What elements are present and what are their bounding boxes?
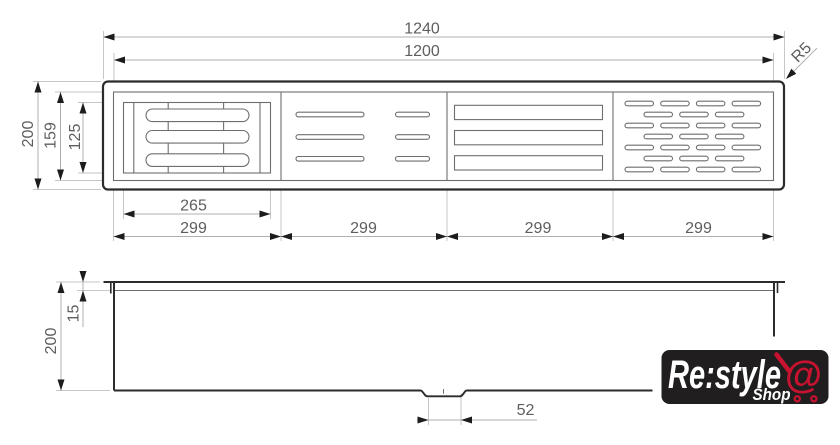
svg-text:299: 299 (350, 220, 377, 237)
svg-text:200: 200 (20, 121, 37, 148)
svg-text:52: 52 (517, 402, 535, 419)
svg-text:15: 15 (66, 305, 83, 323)
svg-text:@: @ (785, 355, 822, 397)
svg-text:R5: R5 (789, 40, 816, 67)
svg-text:125: 125 (67, 124, 84, 151)
svg-text:299: 299 (525, 220, 552, 237)
svg-text:265: 265 (180, 198, 207, 215)
svg-text:200: 200 (43, 328, 60, 355)
svg-text:159: 159 (43, 122, 60, 149)
svg-text:299: 299 (180, 220, 207, 237)
svg-text:1200: 1200 (404, 43, 440, 60)
svg-text:1240: 1240 (404, 21, 440, 38)
svg-text:299: 299 (685, 220, 712, 237)
